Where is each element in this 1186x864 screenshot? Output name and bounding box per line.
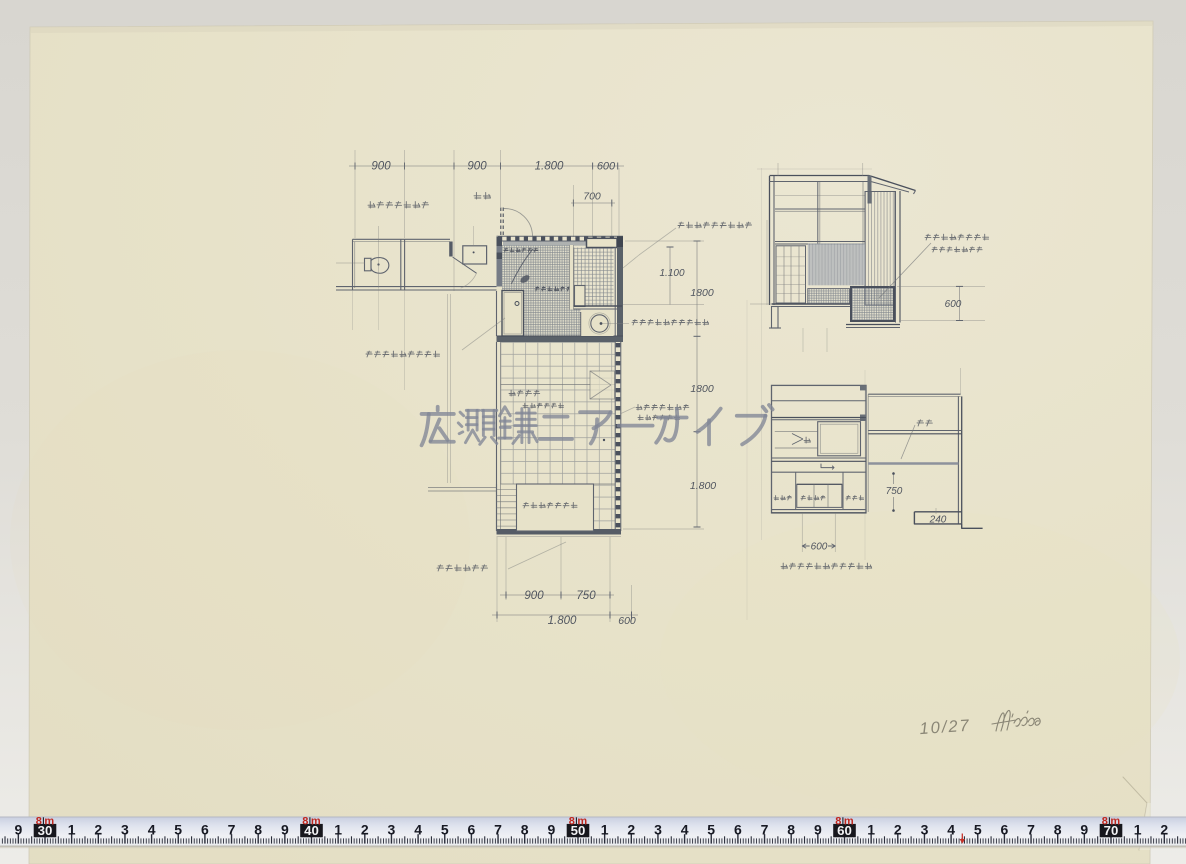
svg-text:10/27: 10/27 xyxy=(919,717,971,739)
svg-text:1.800: 1.800 xyxy=(548,615,577,627)
svg-text:4: 4 xyxy=(414,821,422,837)
svg-text:600: 600 xyxy=(945,299,962,310)
svg-text:600: 600 xyxy=(618,615,636,627)
svg-text:1: 1 xyxy=(867,821,875,837)
svg-text:3: 3 xyxy=(654,821,662,837)
svg-text:5: 5 xyxy=(174,821,182,837)
svg-text:8: 8 xyxy=(302,816,308,828)
svg-text:4: 4 xyxy=(947,821,955,837)
svg-text:6: 6 xyxy=(1001,821,1009,837)
svg-text:8: 8 xyxy=(254,821,262,837)
svg-text:240: 240 xyxy=(929,515,947,526)
svg-text:2: 2 xyxy=(361,821,369,837)
svg-text:6: 6 xyxy=(201,821,209,837)
svg-text:9: 9 xyxy=(281,821,289,837)
svg-text:7: 7 xyxy=(494,821,502,837)
svg-text:2: 2 xyxy=(894,821,902,837)
svg-text:9: 9 xyxy=(548,821,556,837)
svg-text:600: 600 xyxy=(811,542,828,553)
svg-text:750: 750 xyxy=(886,486,903,497)
svg-text:2: 2 xyxy=(94,821,102,837)
svg-text:7: 7 xyxy=(761,821,769,837)
svg-text:900: 900 xyxy=(467,161,487,173)
svg-text:8: 8 xyxy=(787,821,795,837)
svg-text:1: 1 xyxy=(68,821,76,837)
svg-text:9: 9 xyxy=(1080,821,1088,837)
svg-text:3: 3 xyxy=(388,821,396,837)
svg-text:7: 7 xyxy=(228,821,236,837)
svg-text:1.100: 1.100 xyxy=(659,268,684,279)
svg-text:7: 7 xyxy=(1027,821,1035,837)
svg-text:1800: 1800 xyxy=(690,383,714,395)
svg-text:5: 5 xyxy=(974,821,982,837)
svg-text:m: m xyxy=(1110,816,1120,828)
svg-text:8: 8 xyxy=(569,816,575,828)
svg-text:900: 900 xyxy=(524,590,544,602)
svg-text:1.800: 1.800 xyxy=(690,480,716,492)
svg-text:8: 8 xyxy=(521,821,529,837)
svg-text:4: 4 xyxy=(681,821,689,837)
svg-text:m: m xyxy=(844,816,854,828)
svg-text:1800: 1800 xyxy=(690,287,714,299)
svg-text:1: 1 xyxy=(601,821,609,837)
svg-text:1: 1 xyxy=(334,821,342,837)
svg-text:8: 8 xyxy=(1054,821,1062,837)
svg-text:8: 8 xyxy=(835,816,841,828)
svg-text:1.800: 1.800 xyxy=(535,161,564,173)
svg-text:9: 9 xyxy=(814,821,822,837)
svg-text:3: 3 xyxy=(921,821,929,837)
svg-text:700: 700 xyxy=(583,191,601,203)
svg-text:m: m xyxy=(311,816,321,828)
svg-text:8: 8 xyxy=(36,816,42,828)
svg-text:750: 750 xyxy=(576,590,596,602)
svg-text:9: 9 xyxy=(15,821,23,837)
svg-text:2: 2 xyxy=(1160,821,1168,837)
svg-text:6: 6 xyxy=(468,821,476,837)
svg-text:600: 600 xyxy=(597,161,616,173)
svg-text:3: 3 xyxy=(121,821,129,837)
svg-text:2: 2 xyxy=(627,821,635,837)
svg-text:8: 8 xyxy=(1102,816,1108,828)
svg-text:5: 5 xyxy=(707,821,715,837)
svg-text:900: 900 xyxy=(371,161,391,173)
svg-text:1: 1 xyxy=(1134,821,1142,837)
svg-text:m: m xyxy=(44,816,54,828)
svg-text:5: 5 xyxy=(441,821,449,837)
svg-text:6: 6 xyxy=(734,821,742,837)
svg-text:4: 4 xyxy=(148,821,156,837)
svg-text:m: m xyxy=(577,816,587,828)
